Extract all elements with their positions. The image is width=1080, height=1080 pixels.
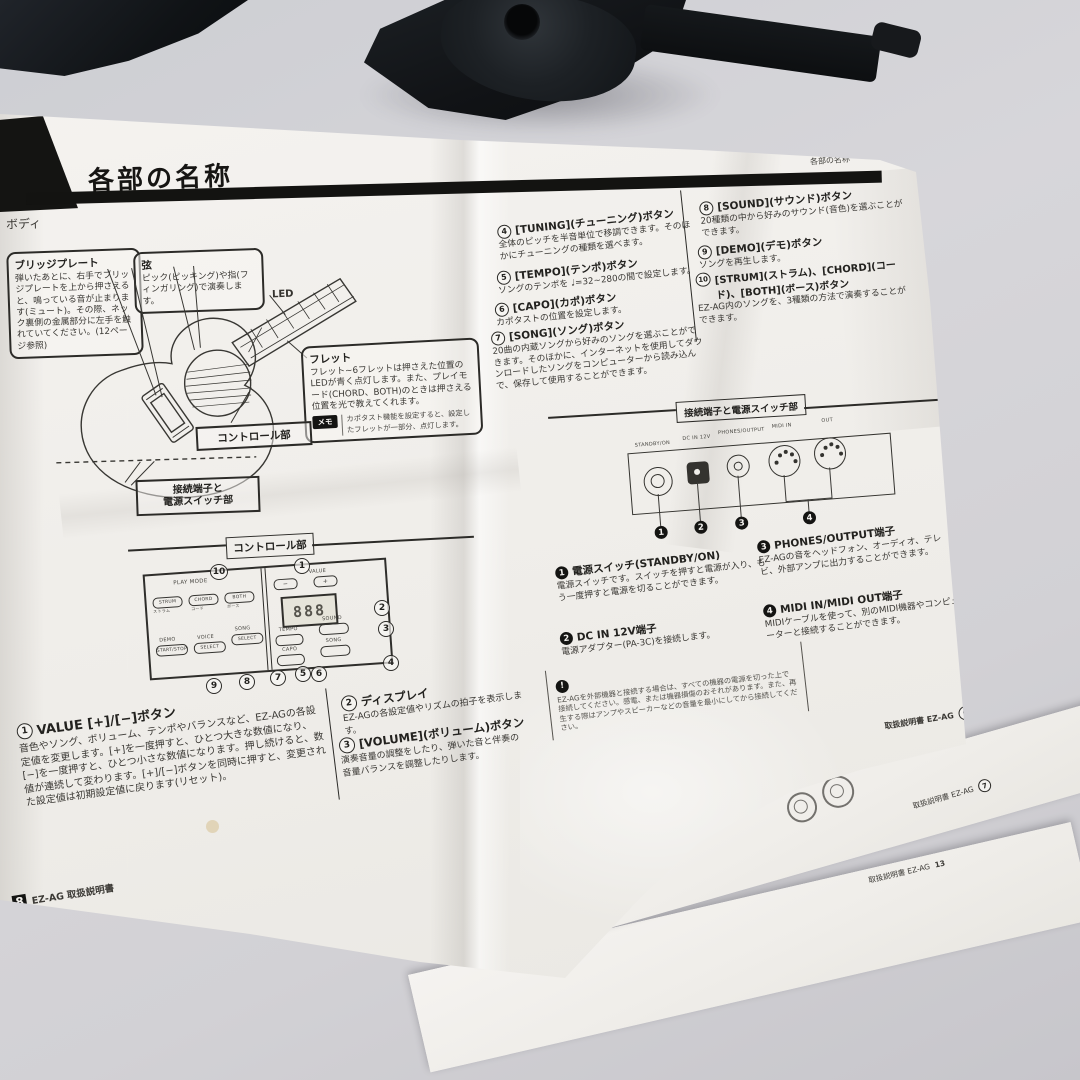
item-number: 5 [496, 270, 511, 285]
item-number: 1 [555, 566, 569, 580]
item-number: 2 [559, 631, 573, 645]
crease-shadow [430, 120, 510, 990]
callout-fret: フレット フレット~6フレットは押さえた位置のLEDが青く点灯します。また、プレ… [301, 337, 484, 443]
demo-start-stop-button: START/STOP [156, 644, 189, 657]
sound-button [319, 622, 350, 635]
callout-number-4: 4 [383, 655, 399, 671]
under-page-3-footer: 取扱説明書 EZ-AG 13 [867, 857, 946, 885]
memo-tag: メモ [312, 415, 338, 429]
photo-scene: 取扱説明書 EZ-AG 13 取扱説明書 EZ-AG 7 各部の名称 各部の名称 [0, 0, 1080, 1080]
strum-jp-label: ストラム [153, 608, 170, 615]
item-midi: 4MIDI IN/MIDI OUT端子 MIDIケーブルを使って、別のMIDI機… [762, 580, 963, 643]
item-number: 3 [338, 736, 356, 754]
item-number: 8 [699, 200, 714, 215]
section-heading-jacks: 接続端子と電源スイッチ部 [675, 394, 806, 423]
demo-label: DEMO [159, 636, 176, 643]
jack-callout-4: 4 [803, 511, 817, 525]
note-text: EZ-AGを外部機器と接続する場合は、すべての機器の電源を切った上で接続してくだ… [557, 668, 800, 733]
under-footer-label: 取扱説明書 EZ-AG [867, 861, 931, 886]
jack-callout-1: 1 [654, 525, 668, 539]
value-plus-button: + [313, 575, 338, 588]
pointer-jack-section: 接続端子と 電源スイッチ部 [135, 476, 260, 516]
strap-corner-piece [0, 0, 248, 76]
section-rule [312, 536, 474, 546]
buckle-hole-icon [504, 4, 540, 40]
power-jack-label: STANDBY/ON [635, 440, 671, 449]
song-button [320, 644, 351, 657]
callout-number-6: 6 [311, 666, 327, 682]
item-number: 1 [16, 722, 34, 740]
footer-right: 取扱説明書 EZ-AG 9 [883, 705, 973, 733]
item-power-switch: 1電源スイッチ(STANDBY/ON) 電源スイッチです。スイッチを押すと電源が… [554, 542, 769, 605]
section-rule [548, 409, 676, 418]
section-heading-control: コントロール部 [225, 533, 314, 560]
under-footer-label: 取扱説明書 EZ-AG [912, 784, 976, 812]
callout-number-3: 3 [378, 621, 394, 637]
voice-select-button: SELECT [194, 641, 227, 654]
item-number: 4 [497, 224, 512, 239]
callout-number-9: 9 [206, 678, 222, 694]
panel-playmode-label: PLAY MODE [173, 578, 208, 586]
item-value-buttons: 1VALUE [+]/[−]ボタン 音色やソング、ボリューム、テンポやバランスな… [16, 682, 331, 810]
midi-in-label: MIDI IN [772, 422, 792, 430]
item-number: 6 [494, 302, 509, 317]
under-page-2-footer: 取扱説明書 EZ-AG 7 [911, 778, 992, 813]
song-label: SONG [325, 637, 341, 644]
song-select-button: SELECT [231, 632, 264, 645]
chord-jp-label: コード [191, 605, 204, 612]
section-rule [128, 544, 226, 551]
value-label: VALUE [309, 568, 327, 575]
jack-callout-2: 2 [694, 520, 708, 534]
jack-callout-3: 3 [735, 516, 749, 530]
page-number: 8 [12, 894, 28, 910]
tempo-label: TEMPO [279, 626, 298, 633]
voice-label: VOICE [197, 634, 214, 641]
column-divider [325, 688, 340, 799]
page-number: 9 [958, 705, 974, 721]
capo-button [277, 654, 306, 667]
strap-band [640, 4, 882, 83]
memo-text: カポタスト機能を設定すると、設定したフレットが一部分、点灯します。 [341, 408, 475, 436]
footer-label: 取扱説明書 EZ-AG [884, 710, 955, 732]
midi-stamp-icon [783, 789, 820, 826]
sound-label: SOUND [322, 615, 342, 622]
pointer-label: コントロール部 [217, 427, 291, 446]
section-heading-label: 接続端子と電源スイッチ部 [684, 398, 799, 419]
pointer-label: 電源スイッチ部 [163, 495, 233, 509]
warning-icon: ! [555, 679, 569, 693]
section-heading-label: コントロール部 [233, 537, 307, 556]
running-header: 各部の名称 [810, 154, 851, 168]
callout-text: フレット~6フレットは押さえた位置のLEDが青く点灯します。また、プレイモード(… [310, 360, 474, 414]
section-rule [804, 399, 938, 409]
callout-number-5: 5 [295, 666, 311, 682]
tempo-button [275, 634, 304, 647]
callout-number-1: 1 [294, 558, 310, 574]
dc-jack-label: DC IN 12V [682, 434, 711, 442]
callout-number-10: 10 [210, 564, 228, 580]
control-panel-diagram: PLAY MODE STRUM CHORD BOTH ストラム コード ボース … [143, 558, 394, 681]
under-page-number: 13 [934, 858, 946, 869]
callout-number-7: 7 [270, 670, 286, 686]
callout-number-2: 2 [374, 600, 390, 616]
stain [206, 820, 219, 833]
item-number: 4 [762, 604, 776, 618]
callout-number-8: 8 [239, 674, 255, 690]
capo-label: CAPO [282, 646, 297, 653]
item-number: 3 [756, 539, 770, 553]
body-section-label: ボディ [6, 217, 42, 231]
midi-out-label: OUT [821, 417, 833, 424]
footer-label: EZ-AG 取扱説明書 [31, 880, 115, 907]
item-number: 7 [490, 330, 505, 345]
item-number: 10 [695, 272, 711, 287]
both-jp-label: ボース [227, 603, 240, 610]
item-number: 2 [340, 694, 358, 712]
dc-in-jack [686, 461, 710, 485]
song-select-label: SONG [234, 625, 250, 632]
under-page-number: 7 [977, 778, 993, 794]
phones-jack-label: PHONES/OUTPUT [718, 427, 765, 437]
value-minus-button: − [273, 578, 298, 591]
item-number: 9 [697, 244, 712, 259]
footer-left: 8 EZ-AG 取扱説明書 [12, 880, 115, 910]
